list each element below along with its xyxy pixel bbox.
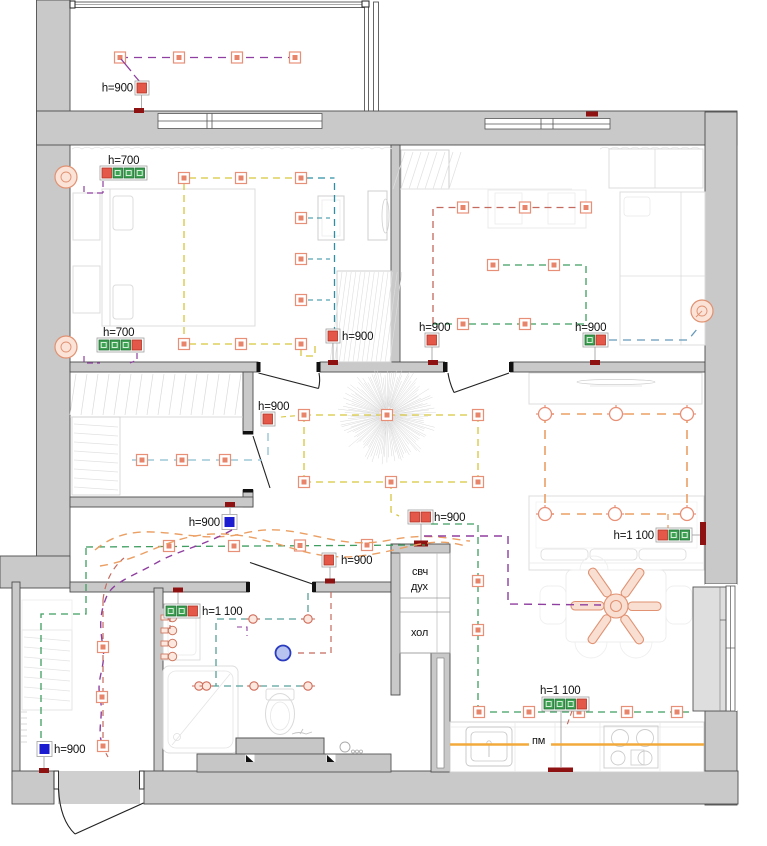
svg-text:h=900: h=900 xyxy=(575,322,606,334)
svg-text:пм: пм xyxy=(532,735,545,747)
svg-text:хол: хол xyxy=(411,627,428,639)
svg-text:h=900: h=900 xyxy=(258,401,289,413)
svg-text:свч: свч xyxy=(412,566,428,578)
svg-text:h=900: h=900 xyxy=(341,555,372,567)
svg-text:h=900: h=900 xyxy=(419,322,450,334)
svg-text:h=900: h=900 xyxy=(54,744,85,756)
svg-text:h=700: h=700 xyxy=(108,155,139,167)
svg-text:дух: дух xyxy=(411,581,429,593)
svg-text:h=1 100: h=1 100 xyxy=(614,530,655,542)
svg-text:h=1 100: h=1 100 xyxy=(540,685,581,697)
svg-text:h=900: h=900 xyxy=(102,83,133,95)
svg-text:h=900: h=900 xyxy=(434,512,465,524)
svg-text:h=1 100: h=1 100 xyxy=(202,606,243,618)
svg-text:h=700: h=700 xyxy=(103,327,134,339)
svg-text:h=900: h=900 xyxy=(342,331,373,343)
svg-text:h=900: h=900 xyxy=(189,517,220,529)
